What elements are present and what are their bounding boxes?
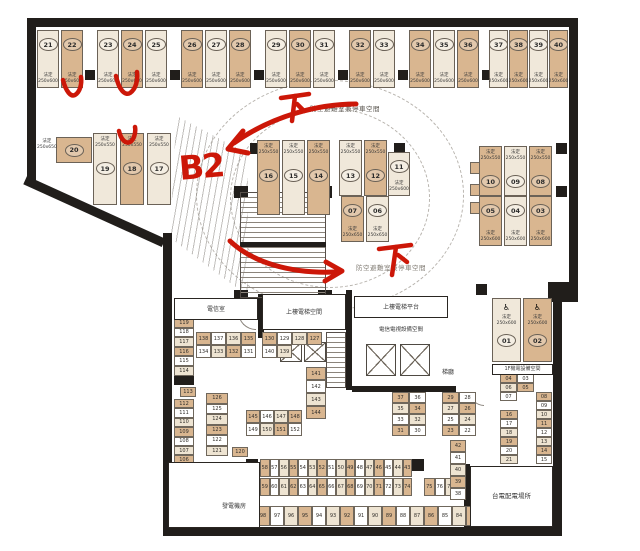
wall — [85, 70, 95, 80]
mini-unit-121: 121 — [206, 446, 228, 457]
mini-unit-58: 58 — [260, 459, 270, 477]
stall-number: 12 — [366, 169, 385, 182]
mini-unit-18: 18 — [500, 428, 518, 437]
mini-unit-132: 132 — [226, 345, 241, 358]
parking-stall-19: 法定250x55019 — [93, 133, 117, 205]
mini-unit-137: 137 — [211, 332, 226, 345]
stall-size-label: 法定250x600 — [481, 231, 501, 242]
stall-number: 27 — [207, 38, 226, 51]
parking-stall-29: 29法定250x600 — [265, 30, 287, 88]
parking-stall-13: 法定250x55013 — [339, 140, 362, 196]
stall-size-label: 法定250x600 — [497, 315, 517, 326]
mini-unit-61: 61 — [279, 478, 289, 496]
mini-unit-22: 22 — [459, 425, 476, 436]
mini-unit-91: 91 — [354, 506, 368, 526]
stall-size-label: 法定250x600 — [230, 73, 250, 84]
stall-number: 24 — [123, 38, 142, 51]
stall-size-label: 法定250x550 — [366, 144, 386, 155]
parking-stall-03: 03法定250x600 — [529, 196, 552, 246]
stall-number: 01 — [497, 334, 516, 347]
mini-unit-128: 128 — [292, 332, 307, 345]
mini-unit-70: 70 — [365, 478, 375, 496]
mini-unit-24: 24 — [459, 414, 476, 425]
mini-unit-120: 120 — [232, 447, 248, 457]
shelter-label-top: 防空避難室兼停車空間 — [310, 103, 380, 113]
mini-unit-67: 67 — [336, 478, 346, 496]
wall — [27, 18, 578, 27]
parking-stall-06: 06法定250x650 — [366, 196, 389, 242]
mini-unit-06: 06 — [500, 383, 517, 392]
stall-size-label: 法定250x550 — [309, 144, 329, 155]
parking-stall-09: 法定250x55009 — [504, 146, 527, 196]
mini-unit-42: 42 — [450, 440, 466, 452]
mini-unit-33: 33 — [392, 414, 409, 425]
parking-stall-17: 法定250x55017 — [147, 133, 171, 205]
parking-stall-10: 法定250x55010 — [479, 146, 502, 196]
stall-size-label: 法定250x600 — [458, 73, 478, 84]
shelter-label-mid: 防空避難室兼停車空間 — [356, 262, 426, 272]
stall-number: 29 — [267, 38, 286, 51]
mini-unit-28: 28 — [459, 392, 476, 403]
wall — [346, 290, 352, 390]
stall-size-label: 法定250x600 — [350, 73, 370, 84]
wall — [27, 18, 36, 180]
stall-size-label: 法定250x600 — [290, 73, 310, 84]
wall — [174, 376, 194, 385]
parking-stall-15: 法定250x55015 — [282, 140, 305, 215]
stall-number: 11 — [390, 160, 409, 173]
mini-unit-123: 123 — [206, 425, 228, 436]
stall-number: 06 — [368, 204, 387, 217]
mini-unit-94: 94 — [312, 506, 326, 526]
parking-stall-21: 21法定250x600 — [37, 30, 59, 88]
mini-unit-41: 41 — [450, 452, 466, 464]
stall-number: 20 — [65, 144, 84, 157]
parking-stall-24: 24法定250x600 — [121, 30, 143, 88]
room-label: 上樓電梯空間 — [286, 309, 322, 316]
room-label: 梯廳 — [442, 369, 454, 376]
stall-size-label: 法定250x600 — [98, 73, 118, 84]
stall-size-label: 法定250x550 — [149, 137, 169, 148]
mini-unit-73: 73 — [393, 478, 403, 496]
wall — [569, 18, 578, 302]
stall-number: 34 — [411, 38, 430, 51]
mini-unit-112: 112 — [174, 399, 194, 408]
room-label: 台電配電場所 — [492, 493, 531, 500]
parking-stall-16: 法定250x55016 — [257, 140, 280, 215]
mini-unit-134: 134 — [196, 345, 211, 358]
parking-stall-05: 05法定250x600 — [479, 196, 502, 246]
room-label: 電信電視設備空間 — [379, 327, 423, 334]
mini-unit-115: 115 — [174, 356, 194, 366]
stall-size-label: 法定250x550 — [259, 144, 279, 155]
mini-unit-74: 74 — [403, 478, 413, 496]
stall-size-label: 法定250x550 — [284, 144, 304, 155]
mini-unit-17: 17 — [500, 419, 518, 428]
mini-unit-65: 65 — [317, 478, 327, 496]
stall-number: 36 — [459, 38, 478, 51]
parking-stall-38: 38法定250x600 — [509, 30, 528, 88]
mini-unit-55: 55 — [289, 459, 299, 477]
stall-size-label: 法定250x600 — [531, 231, 551, 242]
mini-unit-76: 76 — [435, 478, 446, 496]
mini-unit-69: 69 — [355, 478, 365, 496]
mini-unit-47: 47 — [365, 459, 375, 477]
wall — [548, 282, 578, 302]
mini-unit-23: 23 — [442, 425, 459, 436]
mini-unit-75: 75 — [424, 478, 435, 496]
mini-unit-43: 43 — [403, 459, 413, 477]
mini-unit-136: 136 — [226, 332, 241, 345]
stall-number: 26 — [183, 38, 202, 51]
room-tv-equip: 電信電視設備空間 — [352, 324, 450, 336]
mini-unit-139: 139 — [277, 345, 292, 358]
stall-number: 30 — [291, 38, 310, 51]
mini-unit-63: 63 — [298, 478, 308, 496]
parking-stall-25: 25法定250x600 — [145, 30, 167, 88]
mini-unit-127: 127 — [307, 332, 322, 345]
parking-stall-22: 22法定250x600 — [61, 30, 83, 88]
mini-unit-37: 37 — [392, 392, 409, 403]
stall-size-label: 法定250x600 — [374, 73, 394, 84]
mini-unit-39: 39 — [450, 476, 466, 488]
mini-unit-84: 84 — [452, 506, 466, 526]
wall — [476, 284, 487, 295]
parking-stall-11: 11法定250x600 — [388, 152, 410, 196]
mini-unit-50: 50 — [336, 459, 346, 477]
parking-stall-30: 30法定250x600 — [289, 30, 311, 88]
stall-size-label: 法定250x650 — [343, 227, 363, 238]
mini-unit-52: 52 — [317, 459, 327, 477]
mini-unit-144: 144 — [306, 406, 326, 419]
mini-unit-29: 29 — [442, 392, 459, 403]
wall — [254, 70, 264, 80]
mini-unit-32: 32 — [409, 414, 426, 425]
mini-unit-71: 71 — [374, 478, 384, 496]
wall — [163, 527, 562, 536]
mini-unit-60: 60 — [270, 478, 280, 496]
stall-size-label: 法定250x600 — [38, 73, 58, 84]
stall-size-label: 法定250x600 — [122, 73, 142, 84]
stall-number: 10 — [481, 175, 500, 188]
mini-unit-68: 68 — [346, 478, 356, 496]
mini-unit-125: 125 — [206, 404, 228, 415]
mini-unit-147: 147 — [274, 410, 288, 423]
mini-unit-15: 15 — [536, 455, 552, 464]
parking-stall-28: 28法定250x600 — [229, 30, 251, 88]
mini-unit-31: 31 — [392, 425, 409, 436]
mini-unit-145: 145 — [246, 410, 260, 423]
mini-unit-122: 122 — [206, 435, 228, 446]
wall — [338, 70, 348, 80]
mini-unit-04: 04 — [500, 374, 517, 383]
parking-stall-04: 04法定250x600 — [504, 196, 527, 246]
mini-unit-97: 97 — [270, 506, 284, 526]
stall-number: 04 — [506, 204, 525, 217]
stall-number: 17 — [150, 162, 169, 175]
mini-unit-141: 141 — [306, 367, 326, 380]
mini-unit-54: 54 — [298, 459, 308, 477]
accessible-icon: ♿ — [534, 303, 541, 312]
mini-unit-11: 11 — [536, 419, 552, 428]
stall-number: 31 — [315, 38, 334, 51]
mini-unit-87: 87 — [410, 506, 424, 526]
mini-unit-20: 20 — [500, 446, 518, 455]
mini-unit-51: 51 — [327, 459, 337, 477]
stall-number: 16 — [259, 169, 278, 182]
stall-number: 21 — [39, 38, 58, 51]
mini-unit-113: 113 — [180, 387, 196, 397]
mini-unit-86: 86 — [424, 506, 438, 526]
mini-unit-89: 89 — [382, 506, 396, 526]
mini-unit-66: 66 — [327, 478, 337, 496]
mini-unit-107: 107 — [174, 446, 194, 455]
stall-number: 40 — [549, 38, 568, 51]
mini-unit-118: 118 — [174, 328, 194, 338]
mini-unit-92: 92 — [340, 506, 354, 526]
wall — [170, 70, 180, 80]
stall-size-label: 法定250x600 — [62, 73, 82, 84]
mini-unit-114: 114 — [174, 366, 194, 376]
room-elev-up: 上樓電梯空間 — [262, 294, 346, 330]
stall-size-label: 法定250x600 — [146, 73, 166, 84]
mini-unit-72: 72 — [384, 478, 394, 496]
mini-unit-40: 40 — [450, 464, 466, 476]
mini-unit-140: 140 — [262, 345, 277, 358]
mini-unit-117: 117 — [174, 337, 194, 347]
mini-unit-90: 90 — [368, 506, 382, 526]
parking-stall-40: 40法定250x600 — [549, 30, 568, 88]
stall-size-label: 法定250x600 — [266, 73, 286, 84]
mini-unit-25: 25 — [442, 414, 459, 425]
mini-unit-19: 19 — [500, 437, 518, 446]
stall-number: 39 — [529, 38, 548, 51]
mini-unit-38: 38 — [450, 488, 466, 500]
mini-unit-85: 85 — [438, 506, 452, 526]
stall-number: 18 — [123, 162, 142, 175]
mini-unit-35: 35 — [392, 403, 409, 414]
mini-unit-21: 21 — [500, 455, 518, 464]
parking-stall-12: 法定250x55012 — [364, 140, 387, 196]
stall-number: 25 — [147, 38, 166, 51]
stall-size-label: 法定250x600 — [509, 73, 529, 84]
mini-unit-109: 109 — [174, 427, 194, 436]
mini-unit-16: 16 — [500, 410, 518, 419]
mini-unit-53: 53 — [308, 459, 318, 477]
stall-size-label: 法定250x600 — [314, 73, 334, 84]
mini-unit-88: 88 — [396, 506, 410, 526]
stall-size-label: 法定250x600 — [506, 231, 526, 242]
mini-unit-45: 45 — [384, 459, 394, 477]
mini-unit-135: 135 — [241, 332, 256, 345]
stall-number: 22 — [63, 38, 82, 51]
parking-stall-34: 34法定250x600 — [409, 30, 431, 88]
stall-size-label: 法定250x600 — [528, 315, 548, 326]
mini-unit-126: 126 — [206, 393, 228, 404]
mini-unit-08: 08 — [536, 392, 552, 401]
parking-stall-26: 26法定250x600 — [181, 30, 203, 88]
stall-size-label: 法定250x600 — [434, 73, 454, 84]
stall-number: 09 — [506, 175, 525, 188]
elevator-shaft — [366, 344, 396, 376]
elevator-shaft — [304, 342, 326, 362]
parking-stall-14: 法定250x55014 — [307, 140, 330, 215]
stall-size-label: 法定250x600 — [489, 73, 509, 84]
mini-unit-03: 03 — [517, 374, 534, 383]
stall-number: 28 — [231, 38, 250, 51]
mini-unit-116: 116 — [174, 347, 194, 357]
stall-size-label: 法定250x550 — [506, 150, 526, 161]
stall-size-label: 法定250x600 — [389, 181, 409, 192]
mini-unit-148: 148 — [288, 410, 302, 423]
parking-stall-35: 35法定250x600 — [433, 30, 455, 88]
mini-unit-36: 36 — [409, 392, 426, 403]
mini-unit-93: 93 — [326, 506, 340, 526]
mini-unit-07: 07 — [500, 392, 517, 401]
mini-unit-10: 10 — [536, 410, 552, 419]
mini-unit-27: 27 — [442, 403, 459, 414]
stall-size-label: 法定250x550 — [95, 137, 115, 148]
stall-size-label: 法定250x600 — [182, 73, 202, 84]
stall-size-label: 法定250x550 — [122, 137, 142, 148]
mini-unit-133: 133 — [211, 345, 226, 358]
stall-size-label: 法定250x600 — [529, 73, 549, 84]
mini-unit-48: 48 — [355, 459, 365, 477]
stall-number: 13 — [341, 169, 360, 182]
mini-unit-14: 14 — [536, 446, 552, 455]
stall-number: 05 — [481, 204, 500, 217]
elevator-shaft — [400, 344, 430, 376]
mini-unit-110: 110 — [174, 418, 194, 427]
parking-stall-20: 20 — [56, 137, 92, 163]
stall-number: 03 — [531, 204, 550, 217]
stall-number: 37 — [489, 38, 508, 51]
stair-landing — [240, 242, 326, 247]
mini-unit-143: 143 — [306, 393, 326, 406]
mini-unit-95: 95 — [298, 506, 312, 526]
stall-number: 35 — [435, 38, 454, 51]
parking-stall-37: 37法定250x600 — [489, 30, 508, 88]
room-label: 1F機電設備空間 — [504, 366, 540, 373]
room-label: 電信室 — [207, 306, 225, 313]
mini-unit-111: 111 — [174, 408, 194, 417]
stall-number: 33 — [375, 38, 394, 51]
parking-stall-02: ♿法定250x60002 — [523, 298, 552, 362]
basement-floor-plan: 21法定250x60022法定250x60023法定250x60024法定250… — [0, 0, 640, 551]
stall-size-label: 法定250x550 — [341, 144, 361, 155]
stall-number: 23 — [99, 38, 118, 51]
stall-number: 14 — [309, 169, 328, 182]
stall-size-label: 法定250x650 — [368, 227, 388, 238]
mini-unit-138: 138 — [196, 332, 211, 345]
room-taipower: 台電配電場所 — [470, 466, 553, 527]
parking-stall-01: ♿法定250x60001 — [492, 298, 521, 362]
accessible-icon: ♿ — [503, 303, 510, 312]
parking-stall-18: 法定250x55018 — [120, 133, 144, 205]
wall — [553, 300, 562, 536]
wall — [556, 143, 567, 154]
mini-unit-46: 46 — [374, 459, 384, 477]
mini-unit-34: 34 — [409, 403, 426, 414]
mini-unit-149: 149 — [246, 423, 260, 436]
mini-unit-56: 56 — [279, 459, 289, 477]
mini-unit-64: 64 — [308, 478, 318, 496]
stall-size-label: 法定250x600 — [549, 73, 569, 84]
mini-unit-57: 57 — [270, 459, 280, 477]
stair-flight — [326, 332, 346, 388]
parking-stall-27: 27法定250x600 — [205, 30, 227, 88]
stall-number: 08 — [531, 175, 550, 188]
stall-number: 15 — [284, 169, 303, 182]
mini-unit-108: 108 — [174, 437, 194, 446]
mini-unit-124: 124 — [206, 414, 228, 425]
mini-unit-49: 49 — [346, 459, 356, 477]
mini-unit-13: 13 — [536, 437, 552, 446]
parking-stall-07: 07法定250x650 — [341, 196, 364, 242]
mini-unit-131: 131 — [241, 345, 256, 358]
stall-number: 02 — [528, 334, 547, 347]
room-telecom: 電信室 — [174, 298, 258, 320]
room-label: 上樓電梯平台 — [383, 304, 419, 311]
parking-stall-39: 39法定250x600 — [529, 30, 548, 88]
mini-unit-44: 44 — [393, 459, 403, 477]
mini-unit-152: 152 — [288, 423, 302, 436]
mini-unit-05: 05 — [517, 383, 534, 392]
mini-unit-59: 59 — [260, 478, 270, 496]
mini-unit-151: 151 — [274, 423, 288, 436]
mini-unit-96: 96 — [284, 506, 298, 526]
room-mech-1f: 1F機電設備空間 — [492, 364, 553, 375]
parking-stall-08: 法定250x55008 — [529, 146, 552, 196]
parking-stall-33: 33法定250x600 — [373, 30, 395, 88]
mini-unit-62: 62 — [289, 478, 299, 496]
mini-unit-130: 130 — [262, 332, 277, 345]
stall-number: 19 — [96, 162, 115, 175]
stall-size-label: 法定250x600 — [410, 73, 430, 84]
mini-unit-09: 09 — [536, 401, 552, 410]
mini-unit-12: 12 — [536, 428, 552, 437]
wall — [556, 186, 567, 197]
parking-stall-23: 23法定250x600 — [97, 30, 119, 88]
parking-stall-36: 36法定250x600 — [457, 30, 479, 88]
stall-size-label: 法定250x600 — [206, 73, 226, 84]
room-elev-platform: 上樓電梯平台 — [354, 296, 448, 318]
room-label: 發電機房 — [222, 503, 246, 510]
stall-size-label: 法定250x650 — [37, 139, 57, 150]
mini-unit-30: 30 — [409, 425, 426, 436]
wall — [398, 70, 408, 80]
room-stair-lobby: 梯廳 — [430, 366, 466, 379]
stall-size-label: 法定250x550 — [481, 150, 501, 161]
parking-stall-32: 32法定250x600 — [349, 30, 371, 88]
mini-unit-129: 129 — [277, 332, 292, 345]
parking-stall-31: 31法定250x600 — [313, 30, 335, 88]
stall-number: 32 — [351, 38, 370, 51]
stall-number: 38 — [509, 38, 528, 51]
room-generator: 發電機房 — [168, 462, 260, 528]
stall-size-label: 法定250x550 — [531, 150, 551, 161]
wall — [412, 459, 424, 471]
mini-unit-142: 142 — [306, 380, 326, 393]
red-b2-annotation: B2 — [178, 148, 225, 186]
mini-unit-150: 150 — [260, 423, 274, 436]
stall-number: 07 — [343, 204, 362, 217]
mini-unit-26: 26 — [459, 403, 476, 414]
mini-unit-146: 146 — [260, 410, 274, 423]
